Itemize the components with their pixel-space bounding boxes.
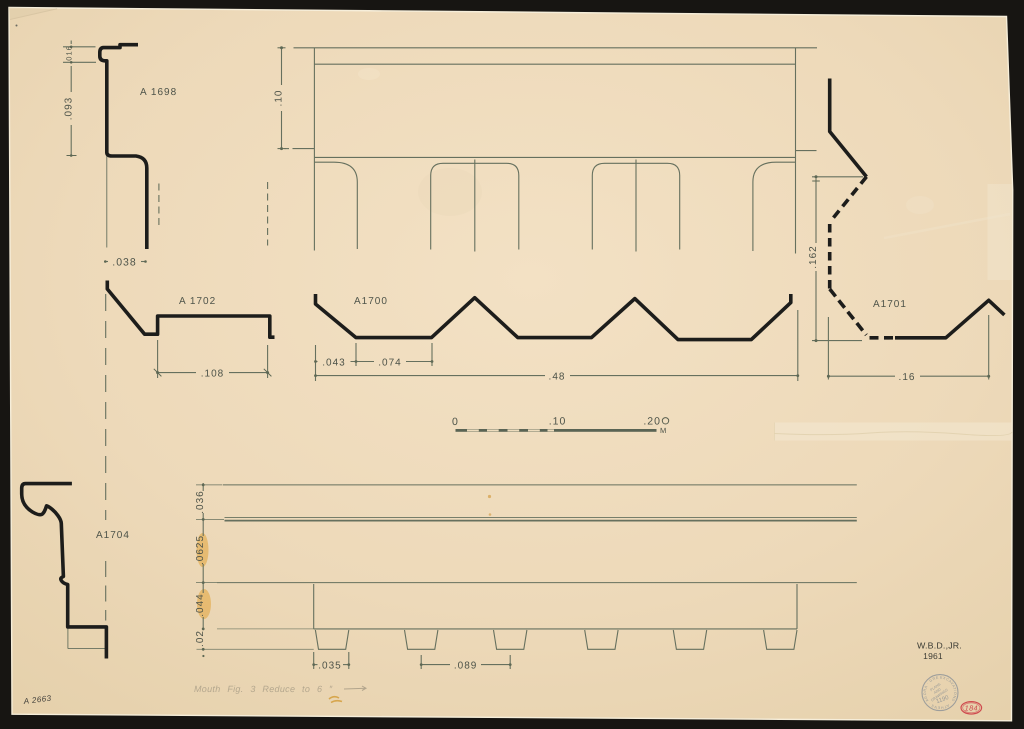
svg-text:A 1698: A 1698	[140, 87, 177, 98]
svg-text:.038: .038	[112, 257, 136, 269]
svg-text:A 1702: A 1702	[179, 296, 216, 307]
svg-text:.108: .108	[201, 369, 224, 380]
svg-text:.044: .044	[195, 593, 206, 616]
svg-text:A1700: A1700	[354, 296, 388, 307]
svg-text:A1701: A1701	[873, 299, 907, 310]
svg-text:.074: .074	[378, 358, 401, 369]
svg-text:W.B.D.,JR.: W.B.D.,JR.	[917, 641, 962, 651]
svg-text:M: M	[660, 426, 667, 435]
svg-text:.10: .10	[549, 416, 567, 428]
svg-text:.089: .089	[454, 661, 477, 672]
svg-text:.48: .48	[549, 372, 566, 383]
svg-text:.02: .02	[195, 630, 206, 647]
svg-text:Mouth Fig. 3 Reduce to 6 ″: Mouth Fig. 3 Reduce to 6 ″	[194, 684, 333, 694]
svg-text:.093: .093	[64, 97, 75, 120]
svg-text:.20: .20	[643, 416, 661, 428]
svg-text:.162: .162	[808, 245, 819, 268]
svg-text:A1704: A1704	[96, 530, 130, 541]
svg-text:.0625: .0625	[195, 535, 206, 565]
svg-text:.036: .036	[195, 490, 206, 513]
svg-text:.16: .16	[899, 372, 916, 383]
svg-text:.043: .043	[322, 358, 345, 369]
svg-text:.016: .016	[65, 45, 74, 64]
svg-text:184: 184	[965, 704, 978, 713]
svg-text:.035: .035	[318, 661, 341, 672]
svg-text:.10: .10	[274, 90, 285, 107]
svg-text:1961: 1961	[923, 651, 943, 661]
svg-text:0: 0	[452, 416, 459, 428]
